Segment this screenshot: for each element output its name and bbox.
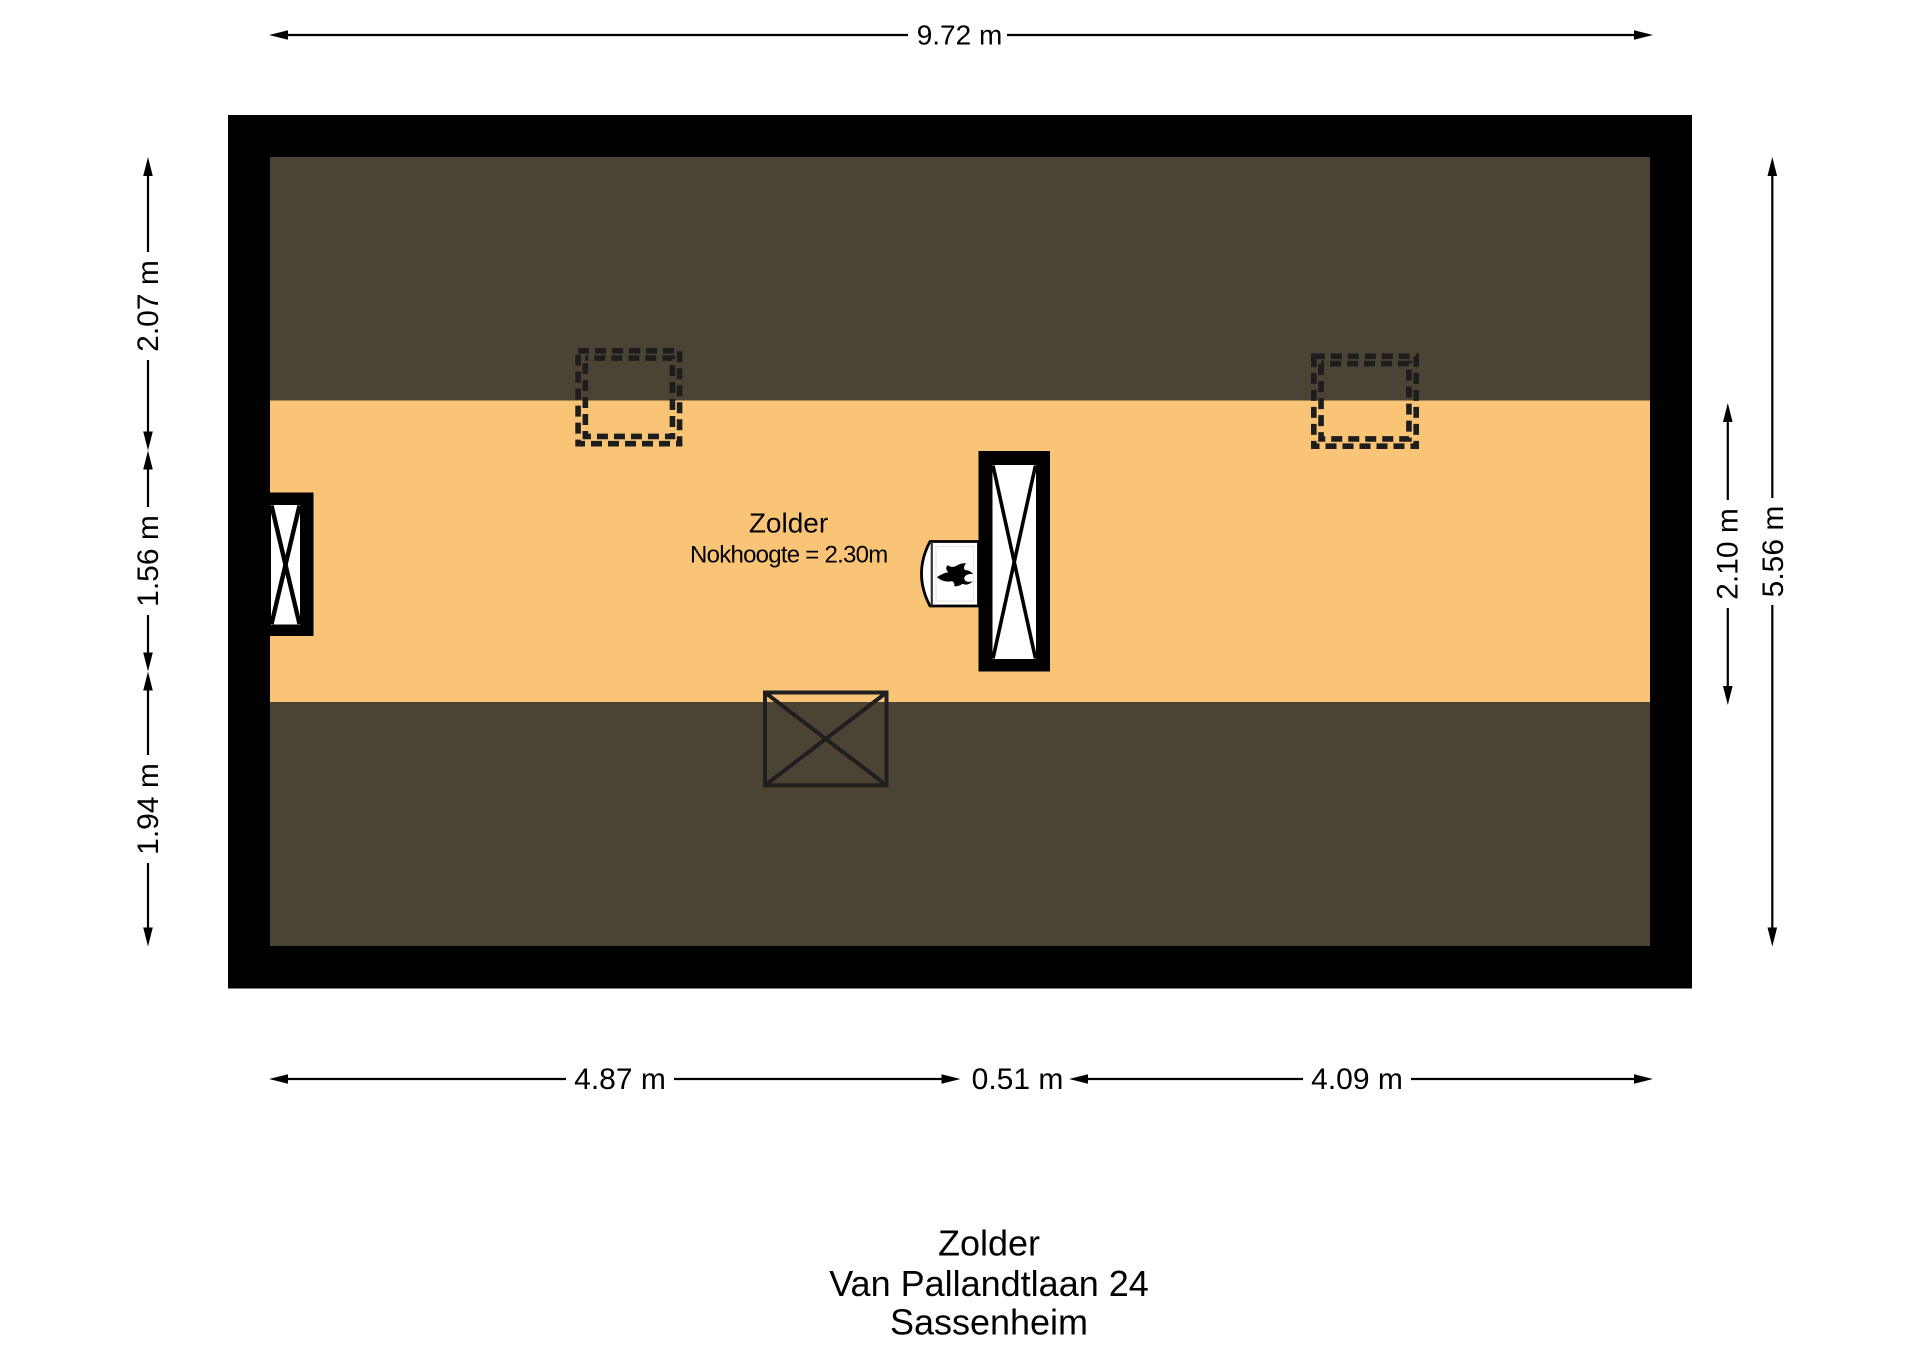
svg-text:Sassenheim: Sassenheim <box>890 1301 1088 1342</box>
svg-text:5.56 m: 5.56 m <box>1757 506 1790 598</box>
svg-text:0.51 m: 0.51 m <box>972 1063 1064 1096</box>
svg-text:Van Pallandtlaan 24: Van Pallandtlaan 24 <box>829 1263 1149 1304</box>
svg-text:9.72 m: 9.72 m <box>917 20 1003 51</box>
svg-text:1.56 m: 1.56 m <box>132 515 165 607</box>
svg-text:4.09 m: 4.09 m <box>1311 1063 1403 1096</box>
svg-text:Zolder: Zolder <box>749 507 828 538</box>
svg-text:2.10 m: 2.10 m <box>1712 508 1745 600</box>
svg-text:Zolder: Zolder <box>938 1223 1040 1264</box>
svg-text:4.87 m: 4.87 m <box>574 1063 666 1096</box>
svg-text:Nokhoogte = 2.30m: Nokhoogte = 2.30m <box>690 542 887 569</box>
svg-text:1.94 m: 1.94 m <box>132 763 165 855</box>
svg-text:2.07 m: 2.07 m <box>132 260 165 352</box>
